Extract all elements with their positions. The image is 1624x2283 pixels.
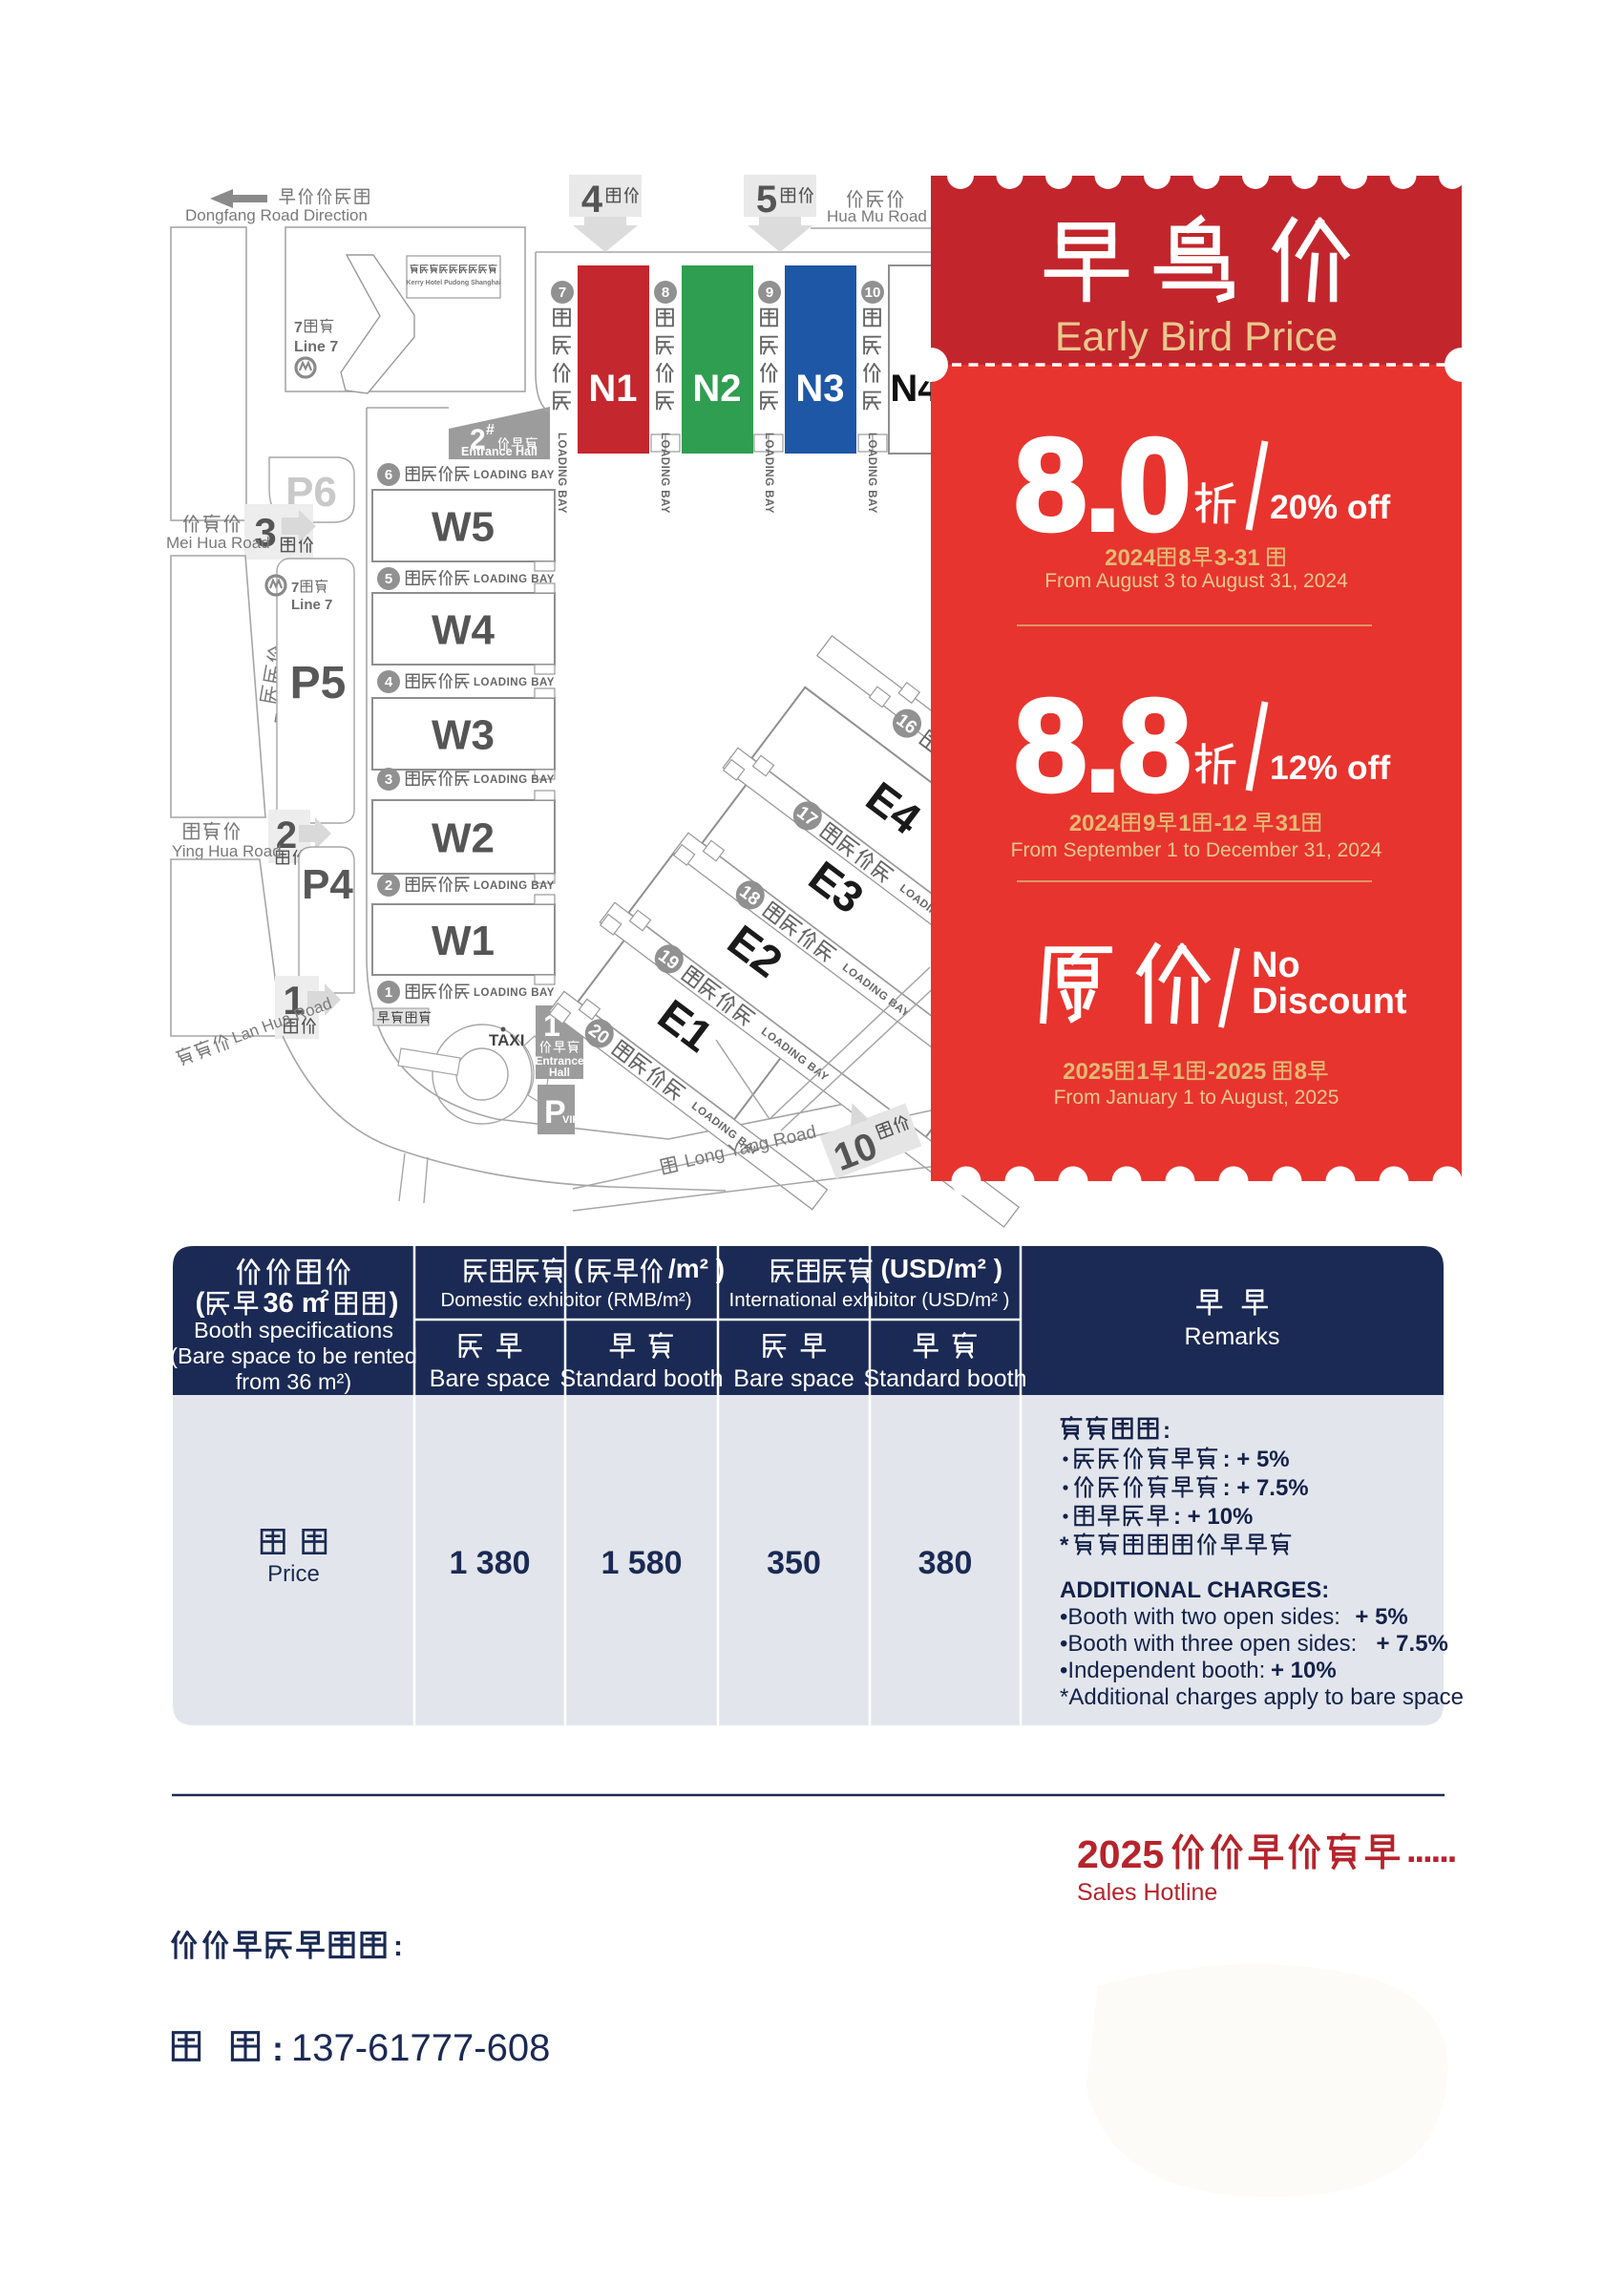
svg-text:/m² ): /m² ) [668,1254,725,1283]
svg-text:Early Bird Price: Early Bird Price [1055,314,1338,360]
svg-text:-12: -12 [1214,811,1248,836]
svg-text:2: 2 [385,877,392,894]
svg-text:......: ...... [1406,1830,1455,1871]
svg-text:3-31: 3-31 [1214,545,1260,571]
svg-text:7: 7 [559,285,566,301]
svg-text:+ 5%: + 5% [1355,1604,1407,1630]
svg-text:LOADING BAY: LOADING BAY [474,470,555,481]
svg-text:from 36 m²): from 36 m²) [236,1369,351,1394]
svg-text:ADDITIONAL CHARGES:: ADDITIONAL CHARGES: [1060,1577,1329,1603]
svg-text:: + 10%: : + 10% [1173,1504,1253,1530]
svg-text:7: 7 [291,580,299,596]
svg-text:+ 7.5%: + 7.5% [1377,1631,1448,1657]
svg-text:*Additional charges apply to b: *Additional charges apply to bare space [1060,1684,1464,1710]
svg-text:Discount: Discount [1252,982,1407,1022]
svg-text:2: 2 [321,1286,329,1304]
svg-text:20% off: 20% off [1270,488,1390,526]
svg-text:N1: N1 [588,368,637,410]
svg-text:LOADING BAY: LOADING BAY [556,433,567,514]
svg-text:Line 7: Line 7 [291,597,332,613]
svg-text:5: 5 [756,179,777,221]
svg-text:Ying Hua Road: Ying Hua Road [172,842,282,860]
svg-text:From September 1 to December 3: From September 1 to December 31, 2024 [1011,839,1382,861]
svg-text:8.8: 8.8 [1014,672,1189,819]
svg-text:No: No [1252,945,1300,985]
svg-text:#: # [486,422,495,438]
svg-text:1: 1 [1136,1059,1149,1085]
svg-text:Remarks: Remarks [1184,1323,1279,1350]
svg-text:1: 1 [385,984,392,1001]
svg-text:Price: Price [267,1561,320,1587]
svg-text:2025: 2025 [1077,1832,1164,1876]
svg-text:1: 1 [1172,1059,1185,1085]
svg-text:(Bare space to be rented: (Bare space to be rented [170,1343,417,1368]
svg-text:7: 7 [294,320,303,336]
svg-text:W5: W5 [432,504,495,551]
svg-text:*: * [1060,1533,1069,1558]
svg-text:3: 3 [385,772,392,788]
svg-text:LOADING BAY: LOADING BAY [474,774,555,786]
svg-text:From January 1 to August, 2025: From January 1 to August, 2025 [1054,1087,1339,1109]
svg-text:TAXI: TAXI [489,1031,524,1049]
svg-text:International exhibitor (USD/m: International exhibitor (USD/m² ) [729,1289,1010,1311]
svg-text:Dongfang Road Direction: Dongfang Road Direction [185,206,368,224]
svg-text:(: ( [196,1287,205,1319]
svg-text::: : [272,2029,284,2068]
svg-text:P4: P4 [302,861,353,908]
svg-text:8.0: 8.0 [1014,412,1189,559]
svg-text:LOADING BAY: LOADING BAY [474,880,555,892]
svg-text:LOADING BAY: LOADING BAY [659,433,670,514]
svg-text:Hua Mu Road: Hua Mu Road [827,207,927,225]
svg-text:Hall: Hall [549,1066,570,1079]
svg-text:(USD/m² ): (USD/m² ) [881,1254,1003,1283]
svg-text:-2025: -2025 [1208,1059,1266,1085]
svg-text:•Booth with three open sides:: •Booth with three open sides: [1060,1631,1357,1657]
svg-text:LOADING BAY: LOADING BAY [474,677,555,688]
svg-text:8: 8 [1295,1059,1307,1085]
svg-text:Standard booth: Standard booth [864,1365,1027,1392]
svg-text:•Independent booth:: •Independent booth: [1060,1658,1265,1683]
svg-text:: + 7.5%: : + 7.5% [1223,1475,1309,1501]
svg-text:8: 8 [1178,545,1191,571]
svg-text:N3: N3 [795,368,844,410]
svg-text:36 m: 36 m [264,1288,327,1319]
svg-text:2024: 2024 [1069,811,1121,836]
svg-text:: + 5%: : + 5% [1223,1447,1290,1472]
svg-text:9: 9 [1143,811,1155,836]
svg-text:31: 31 [1276,811,1301,836]
svg-text:LOADING BAY: LOADING BAY [763,433,774,514]
svg-text:6: 6 [385,467,392,483]
svg-text:5: 5 [385,571,392,587]
svg-text:Kerry Hotel Pudong Shanghai: Kerry Hotel Pudong Shanghai [406,280,500,286]
svg-text:LOADING BAY: LOADING BAY [474,574,555,585]
svg-text:380: 380 [918,1545,973,1581]
svg-text:+ 10%: + 10% [1271,1658,1337,1683]
svg-text:Domestic exhibitor (RMB/m²): Domestic exhibitor (RMB/m²) [440,1289,691,1311]
svg-text:From August 3 to August 31, 20: From August 3 to August 31, 2024 [1044,570,1348,592]
svg-text:12% off: 12% off [1270,749,1390,787]
svg-text:4: 4 [385,674,393,690]
svg-text:350: 350 [767,1545,821,1581]
svg-text:Line 7: Line 7 [294,339,338,355]
svg-text:137-61777-608: 137-61777-608 [291,2027,550,2069]
svg-text:LOADING BAY: LOADING BAY [474,987,555,999]
svg-text:N2: N2 [692,368,741,410]
svg-text:W4: W4 [432,607,496,654]
svg-text::: : [393,1931,403,1962]
svg-text:): ) [390,1287,399,1319]
svg-text:Standard booth: Standard booth [560,1365,724,1392]
svg-text:2025: 2025 [1063,1059,1113,1085]
svg-text:LOADING BAY: LOADING BAY [866,433,877,514]
svg-text:Bare space: Bare space [733,1365,854,1392]
svg-text::: : [1163,1418,1171,1444]
svg-text:8: 8 [662,285,669,301]
svg-text:2024: 2024 [1105,545,1156,571]
svg-text:•Booth with two open sides:: •Booth with two open sides: [1060,1604,1340,1630]
svg-text:VIP: VIP [562,1114,580,1126]
svg-text:9: 9 [766,285,773,301]
svg-text:Mei Hua Road: Mei Hua Road [166,534,270,552]
svg-text:(: ( [574,1254,583,1283]
svg-text:Bare space: Bare space [430,1365,550,1392]
svg-text:Entrance Hall: Entrance Hall [461,445,538,458]
svg-text:1 580: 1 580 [601,1545,682,1581]
svg-text:W3: W3 [432,712,495,759]
svg-text:1: 1 [1178,811,1191,836]
svg-text:W1: W1 [432,918,495,964]
svg-text:W2: W2 [432,815,495,862]
svg-text:Booth specifications: Booth specifications [194,1318,393,1342]
svg-text:1 380: 1 380 [449,1545,530,1581]
svg-text:P5: P5 [290,658,347,708]
svg-text:Sales Hotline: Sales Hotline [1077,1879,1217,1906]
svg-text:10: 10 [865,285,881,301]
svg-text:4: 4 [581,179,603,221]
